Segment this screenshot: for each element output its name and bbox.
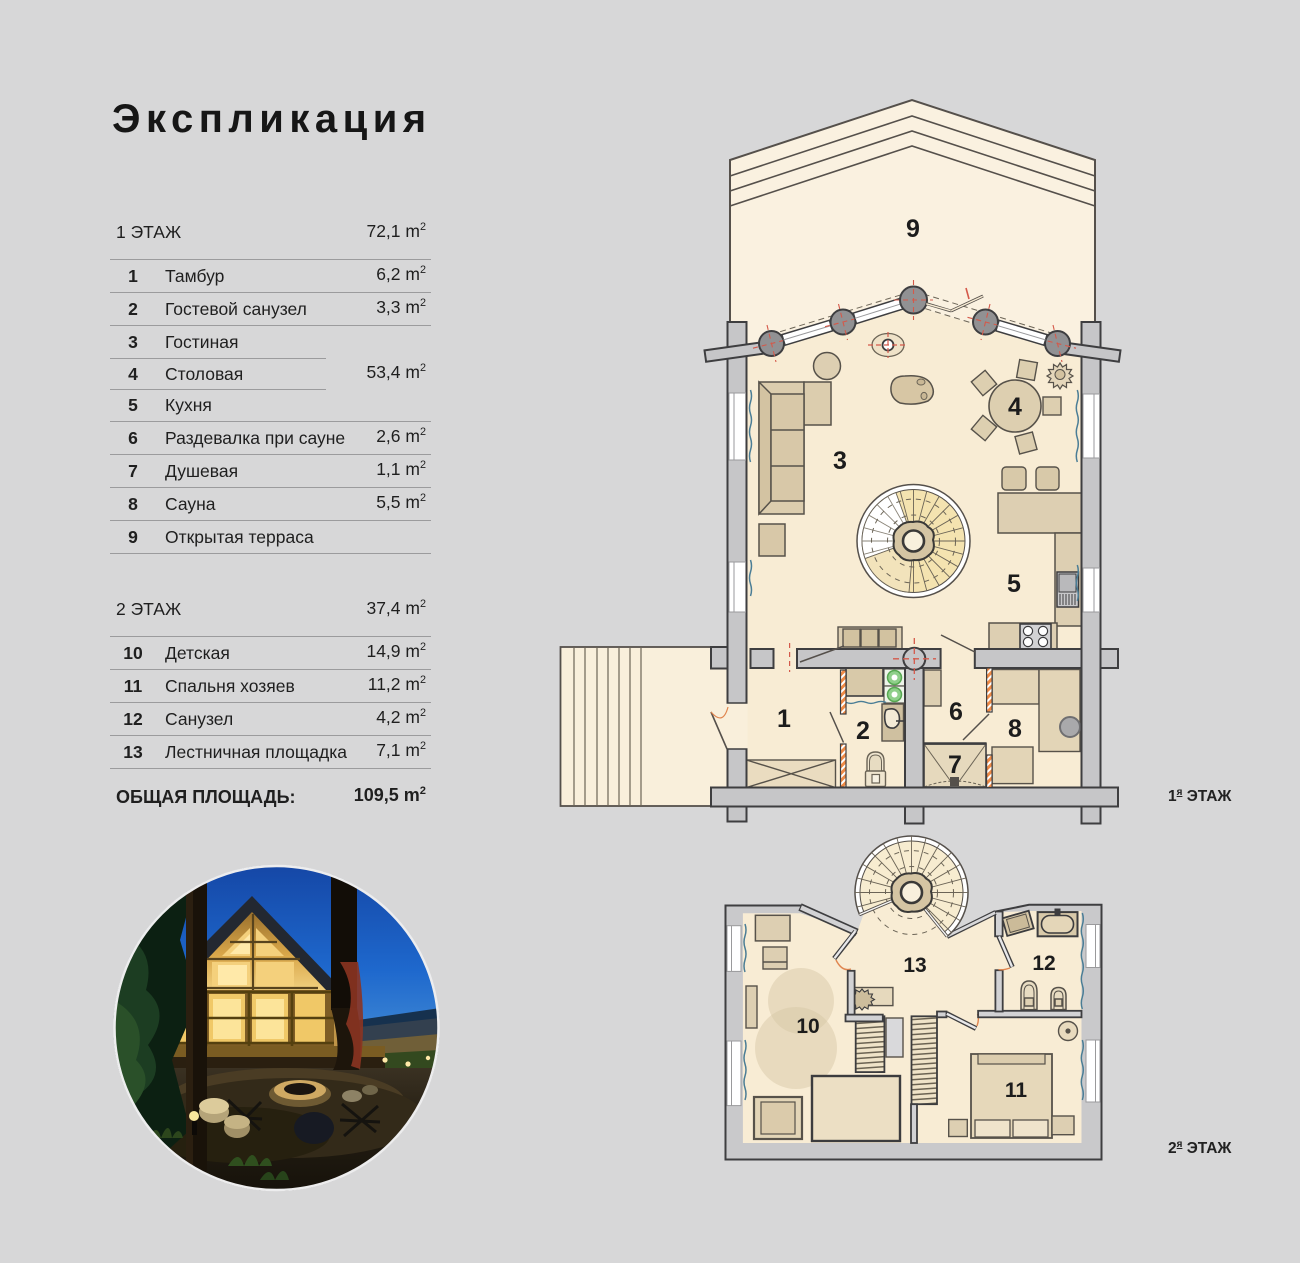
svg-text:2: 2 (856, 717, 870, 745)
svg-text:7: 7 (948, 751, 962, 779)
svg-text:11: 11 (1005, 1079, 1028, 1102)
svg-text:6: 6 (949, 698, 963, 726)
svg-text:10: 10 (796, 1015, 819, 1038)
svg-text:8: 8 (1008, 715, 1022, 743)
svg-text:12: 12 (1032, 952, 1055, 975)
svg-text:4: 4 (1008, 393, 1022, 421)
svg-text:5: 5 (1007, 570, 1021, 598)
svg-text:13: 13 (903, 954, 926, 977)
svg-text:9: 9 (906, 215, 920, 243)
svg-text:3: 3 (833, 447, 847, 475)
svg-text:1: 1 (777, 705, 791, 733)
